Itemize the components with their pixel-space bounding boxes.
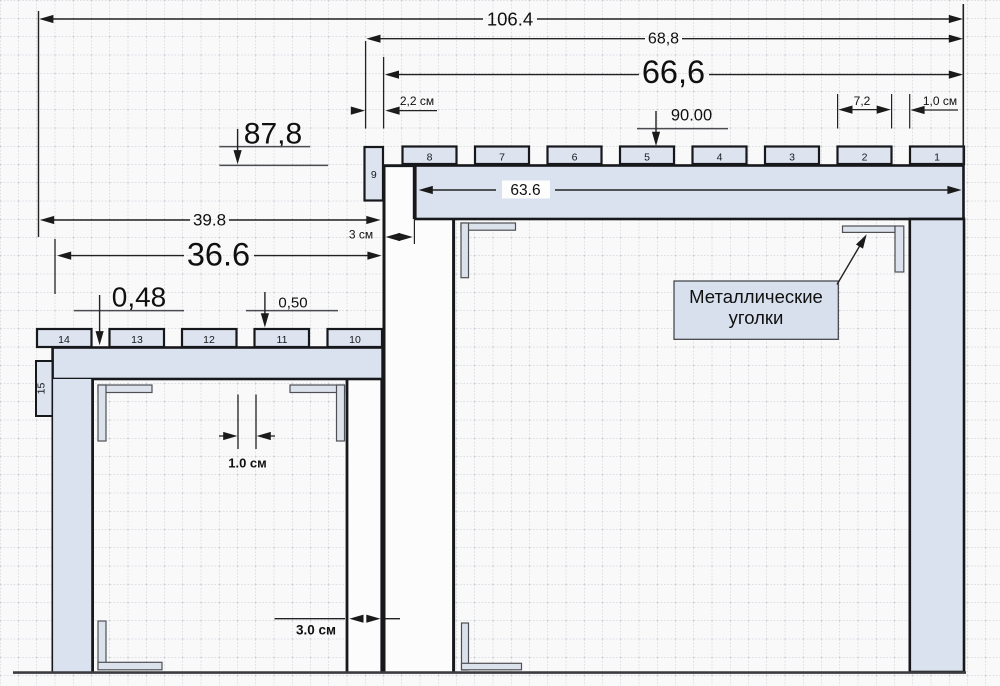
svg-text:10: 10: [349, 334, 361, 346]
svg-text:15: 15: [36, 383, 48, 395]
svg-text:87,8: 87,8: [244, 118, 302, 151]
svg-text:3 см: 3 см: [349, 228, 373, 242]
svg-text:0,48: 0,48: [112, 282, 167, 313]
svg-text:39.8: 39.8: [193, 211, 226, 230]
svg-text:уголки: уголки: [729, 307, 784, 328]
svg-text:36.6: 36.6: [187, 237, 250, 273]
svg-text:8: 8: [427, 152, 433, 164]
svg-text:13: 13: [131, 334, 143, 346]
svg-text:66,6: 66,6: [642, 54, 705, 90]
svg-text:2: 2: [862, 152, 868, 164]
svg-text:63.6: 63.6: [510, 182, 540, 199]
svg-text:106.4: 106.4: [487, 9, 533, 30]
svg-text:1.0 см: 1.0 см: [228, 456, 267, 471]
svg-text:3.0 см: 3.0 см: [296, 623, 336, 638]
svg-text:4: 4: [717, 152, 723, 164]
svg-text:7: 7: [499, 152, 505, 164]
svg-text:14: 14: [58, 334, 70, 346]
svg-text:68,8: 68,8: [648, 31, 679, 48]
svg-text:90.00: 90.00: [671, 107, 712, 125]
svg-text:1: 1: [934, 152, 940, 164]
svg-text:2,2 см: 2,2 см: [400, 94, 434, 108]
svg-text:Металлические: Металлические: [689, 286, 823, 307]
svg-text:12: 12: [203, 334, 215, 346]
svg-text:5: 5: [644, 152, 650, 164]
svg-text:11: 11: [277, 334, 288, 346]
svg-text:0,50: 0,50: [278, 295, 307, 312]
svg-text:7,2: 7,2: [854, 94, 871, 108]
svg-text:6: 6: [572, 152, 578, 164]
svg-text:1,0 см: 1,0 см: [923, 94, 957, 108]
svg-text:9: 9: [371, 169, 377, 181]
svg-text:3: 3: [789, 152, 795, 164]
